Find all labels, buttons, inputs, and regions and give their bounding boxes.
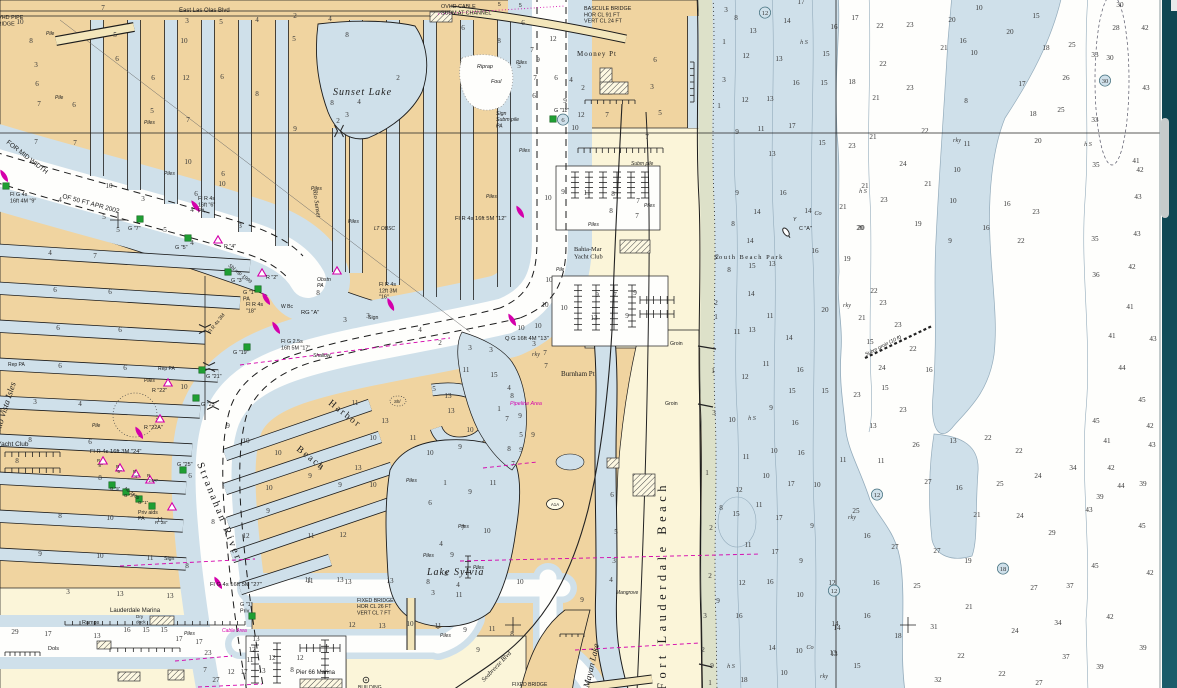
place-label: Shallow [313,353,331,359]
sounding: 9 [293,125,297,133]
daymark-green-square-icon [3,183,9,189]
sounding: 37 [1062,653,1070,661]
sounding: 23 [906,84,914,92]
sounding: 7 [101,4,105,12]
sounding: 9 [595,291,599,299]
place-label: Riprap [477,64,493,70]
sounding: 17 [787,480,795,488]
building-hatched [150,616,174,625]
sounding: 13 [829,649,837,657]
place-label: Mooney Pt [577,50,617,58]
place-label: Groin [665,401,678,407]
place-label: LT OBSC [374,226,395,232]
sounding: 21 [965,603,973,611]
nav-aid-label: R "22A" [144,425,163,431]
sounding: 45 [1138,522,1146,530]
sounding: 8 [15,457,19,465]
place-label: Cable Area [222,628,247,634]
sounding: 11 [147,554,154,562]
sounding: 11 [410,434,417,442]
sounding: 10 [265,484,273,492]
nav-aid-label: G "3" [231,278,244,284]
place-label: Piles [516,60,527,66]
place-label: Bahia-MarYacht Club [574,246,603,261]
sounding: 3 [34,61,38,69]
sounding: 7 [37,100,41,108]
sounding: 11 [745,541,752,549]
sounding: 6 [532,92,536,100]
sounding: 22 [957,652,965,660]
sounding: 12 [348,621,356,629]
sounding: 9 [716,597,720,605]
sounding: 22 [909,345,917,353]
place-label: Piles [516,60,527,66]
sounding: 11 [767,312,774,320]
bottom-type-label: rky [843,302,851,309]
sounding: 4 [48,249,52,257]
sounding: 15 [160,626,168,634]
sounding: 10 [560,304,568,312]
sounding: 29 [1048,529,1056,537]
place-label: Pile [55,95,64,101]
sounding: 23 [1032,208,1040,216]
place-label: FIXED BRIDGEHOR CL 26 FTVERT CL 7 FT [357,598,394,616]
place-label: FIXED BRIDGE [512,682,548,688]
nav-aid-label: G "25" [177,462,193,468]
sounding: 2 [708,572,712,580]
sounding: 13 [252,635,260,643]
sounding: 13 [775,55,783,63]
sounding: 9 [476,646,480,654]
sounding: 41 [1108,332,1116,340]
sounding: 8 [211,518,215,526]
sounding: 39 [1139,644,1147,652]
sounding: 10 [516,578,524,586]
sounding: 5 [219,18,223,26]
sounding: 11 [964,140,971,148]
building-circle-dot [365,679,367,681]
sounding: 9 [710,662,714,670]
sounding: 10 [975,4,983,12]
sounding: 21 [924,180,932,188]
sounding: 25 [1057,106,1065,114]
place-label: Bahia-MarYacht Club [574,246,603,261]
sounding: 11 [490,479,497,487]
sounding: 15 [853,662,861,670]
sounding: 10 [571,124,579,132]
sounding: 25 [913,582,921,590]
sounding: 45 [1091,562,1099,570]
sounding: 8 [290,666,294,674]
place-label: Cable Area [222,628,247,634]
nav-aid-label: G "5" [175,245,188,251]
route-shield-label: A1A [551,502,559,507]
sounding: 12 [741,96,749,104]
building-hatched [97,641,111,649]
sounding: 2 [709,524,713,532]
sounding: 16 [811,247,819,255]
place-label: Burnham Pt [561,370,595,378]
sounding: 7 [511,460,515,468]
place-label: 5 [519,3,522,9]
sounding: 9 [561,188,565,196]
sounding: 2 [581,84,585,92]
nav-aid-label: G "1" [138,500,149,505]
nav-aid-label: G "5" [110,486,121,491]
sounding: 4 [255,16,259,24]
sounding: 10 [406,620,414,628]
sounding: 11 [307,577,314,585]
sounding: 10 [949,197,957,205]
nav-aid-label: G "21" [206,374,222,380]
sounding: 43 [1134,193,1142,201]
sounding: 3 [343,316,347,324]
sounding: 5 [519,431,523,439]
sounding: 27 [924,478,932,486]
place-label: Piles [440,633,451,639]
sounding: 22 [921,127,929,135]
sounding: 9 [799,557,803,565]
sounding: 21 [858,314,866,322]
sounding: 13 [378,622,386,630]
sounding: 16 [982,224,990,232]
sounding: 6 [56,324,60,332]
sounding: 20 [821,306,829,314]
chart-pan-area[interactable]: 3813141716121315131213161518117911131523… [0,0,1177,688]
bottom-type-label: rky [532,351,540,358]
sounding: 24 [1034,472,1042,480]
sounding: 10 [795,647,803,655]
sounding: 3 [489,346,493,354]
sounding: 24 [878,364,886,372]
place-label: FIXED BRIDGE [512,682,548,688]
sounding: 8 [185,562,189,570]
nav-aid-label: G "3" [124,493,135,498]
sounding: 2 [438,339,442,347]
sounding: 20 [857,224,865,232]
sounding: 16 [779,189,787,197]
place-label: Sign [368,315,378,321]
place-label: LT OBSC [374,226,395,232]
sounding: 6 [58,362,62,370]
sounding: 10 [184,158,192,166]
sounding: 4 [507,384,511,392]
place-label: 5 [519,3,522,9]
sounding: 8 [255,90,259,98]
sounding: 9 [625,312,629,320]
sounding: 17 [775,514,783,522]
sounding: 17 [1018,80,1026,88]
place-label: Ramps [82,620,100,626]
sounding: 37 [1066,582,1074,590]
sounding: 9 [38,550,42,558]
sounding: 7 [530,46,534,54]
chart-paper: 3813141716121315131213161518117911131523… [0,0,1162,688]
sounding: 13 [386,577,394,585]
sounding: 23 [853,391,861,399]
sounding: 7 [544,362,548,370]
place-label: Piles [423,553,434,559]
sounding: 6 [610,491,614,499]
nav-aid-label: Q G 16ft 4M "13" [505,336,549,342]
sounding: 1 [443,479,447,487]
sounding: 10 [545,276,553,284]
place-label: Piles [486,194,497,200]
nav-aid-label: R "22" [152,388,167,394]
sounding: 10 [780,669,788,677]
sounding: 8 [316,289,320,297]
sounding: 8 [28,436,32,444]
sounding: 13 [354,464,362,472]
sounding: 6 [88,438,92,446]
sounding: 13 [590,314,598,322]
sounding: 21 [973,511,981,519]
sounding: 11 [756,501,763,509]
sounding: 24 [1016,512,1024,520]
sounding: 15 [820,79,828,87]
sounding: 15 [748,262,756,270]
sounding: 4 [418,326,422,334]
sounding: 14 [804,207,812,215]
sounding: 4 [456,581,460,589]
sounding: 13 [749,27,757,35]
sounding: 6 [220,73,224,81]
sounding: 15 [818,139,826,147]
place-label: Pile [556,267,565,273]
building-hatched [607,458,619,468]
bottom-type-label: Co [814,210,821,217]
sounding: 3 [185,17,189,25]
sounding: 14 [783,17,791,25]
sounding: 33 [1091,116,1099,124]
sounding: 23 [204,649,212,657]
sounding: 22 [984,434,992,442]
nav-aid-label: Fl G 4s 16ft 5M "27" [210,582,262,588]
place-label: Rep PA [8,362,26,368]
sounding: 23 [906,21,914,29]
sounding: 10 [369,434,377,442]
sounding: 21 [940,44,948,52]
sounding: 2 [336,117,340,125]
sounding: 36 [1092,271,1100,279]
place-label: Pile [556,267,565,273]
sounding: 5 [292,35,296,43]
nav-aid-label: Fl R 4s 16ft 3M "24" [90,449,141,455]
daymark-green-square-icon [255,286,261,292]
nav-aid-label: G "11" [554,108,569,114]
sounding: 10 [426,449,434,457]
sounding: 10 [728,416,736,424]
sounding: 7 [635,212,639,220]
sounding: 11 [734,328,741,336]
bottom-type-label: rky [820,673,828,680]
sounding: 7 [73,139,77,147]
sounding: 41 [1103,437,1111,445]
sounding: 7 [645,133,649,141]
bottom-type-label: h S [748,415,756,422]
sounding: 1 [497,405,501,413]
place-label: Subm pile [631,161,653,167]
sounding: 23 [848,142,856,150]
sounding: 8 [611,190,615,198]
sounding: 8 [719,504,723,512]
sounding: 14 [768,644,776,652]
nav-aid-label: G "7" [128,226,141,232]
circled-sounding-value: 12 [831,588,838,595]
sounding: 24 [1011,627,1019,635]
daymark-green-square-icon [149,503,155,509]
sounding: 17 [788,122,796,130]
sounding: 39 [1096,663,1104,671]
sounding: 15 [881,384,889,392]
sounding: 2 [701,646,705,654]
sounding: 16 [872,579,880,587]
bottom-type-label: Co [806,644,813,651]
sounding: 21 [869,133,877,141]
place-label: Shl [394,399,401,404]
sounding: 13 [869,422,877,430]
sounding: 42 [1141,24,1149,32]
sounding: 16 [796,366,804,374]
vertical-scrollbar-thumb[interactable] [1161,118,1169,218]
place-label: FIXED BRIDGEHOR CL 26 FTVERT CL 7 FT [357,598,394,616]
sounding: 15 [490,371,498,379]
sounding: 9 [948,237,952,245]
sounding: 16 [863,532,871,540]
sounding: 1 [705,469,709,477]
sounding: 16 [863,612,871,620]
sounding: 9 [518,412,522,420]
sounding: 23 [894,321,902,329]
sounding: 16 [766,578,774,586]
sounding: 26 [912,441,920,449]
sounding: 10 [762,472,770,480]
sounding: 6 [461,24,465,32]
sounding: 16 [792,79,800,87]
place-label: Sign [368,315,378,321]
nav-aid-label: C "A" [799,226,812,232]
sounding: 16 [959,37,967,45]
sounding: 16 [925,366,933,374]
sounding: 27 [212,676,220,684]
sounding: 15 [821,387,829,395]
sounding: 14 [747,290,755,298]
place-label: Groin [670,341,683,347]
building-hatched [118,672,140,681]
nav-aid-label: G "5" [110,486,121,491]
place-label: Pile [46,31,55,37]
sounding: 4 [357,98,361,106]
sounding: 3 [650,83,654,91]
sounding: 41 [1126,303,1134,311]
sounding: 10 [242,437,250,445]
place-label: Piles [406,478,417,484]
sounding: 10 [105,182,113,190]
sounding: 13 [116,590,124,598]
place-label: Piles [348,219,359,225]
sounding: 10 [274,449,282,457]
sounding: 8 [29,37,33,45]
nav-aid-label: Fl R 4s 16ft 5M "12" [455,216,506,222]
sounding: 9 [531,431,535,439]
bottom-type-label: h S [727,663,735,670]
sounding: 45 [1138,396,1146,404]
nav-aid-label: W Bc [281,304,293,310]
sounding: 3 [468,344,472,352]
place-label: Burnham Pt [561,370,595,378]
sounding: 6 [554,74,558,82]
sounding: 4 [78,400,82,408]
sounding: 8 [510,392,514,400]
sounding: 6 [115,55,119,63]
sounding: 15 [822,50,830,58]
sounding: 10 [770,447,778,455]
route-shield-label: A1A [551,502,559,507]
sounding: 12 [741,373,749,381]
scrollbar-corner [1171,0,1177,11]
sounding: 10 [218,180,226,188]
sounding: 8 [345,31,349,39]
sounding: 11 [308,532,315,540]
sounding: 39 [1096,493,1104,501]
place-label: Shl [394,399,401,404]
place-label: Mangrove [616,590,638,596]
sounding: 11 [743,453,750,461]
daymark-green-square-icon [185,235,191,241]
place-label: Pile [46,31,55,37]
sounding: 42 [1107,464,1115,472]
sounding: 12 [242,532,250,540]
daymark-green-square-icon [137,216,143,222]
nav-aid-label: G "7" [128,226,141,232]
sounding: 11 [352,399,359,407]
sounding: 12 [577,111,585,119]
circled-sounding-value: 18 [1000,566,1007,573]
place-label: Pier 66 Marina [296,670,336,676]
nav-aid-label: RG "A" [301,310,319,316]
sounding: 13 [748,326,756,334]
sounding: 30 [1106,54,1114,62]
sounding: 5 [432,385,436,393]
sounding: 19 [964,557,972,565]
bottom-type-label: h S [859,188,867,195]
nav-aid-label: G "11" [554,108,569,114]
place-label: Dols [48,646,59,652]
sounding: 3 [712,409,716,417]
sounding: 13 [258,667,266,675]
building-hatched [633,474,655,496]
sounding: 39 [1139,480,1147,488]
sounding: 6 [35,80,39,88]
sounding: 13 [444,392,452,400]
place-label: Piles [644,203,655,209]
nav-aid-label: G "25" [177,462,193,468]
sounding: 7 [203,666,207,674]
place-label: Pile [92,423,101,429]
sounding: 27 [933,547,941,555]
sounding: 42 [1128,263,1136,271]
sounding: 42 [1106,613,1114,621]
sounding: 5 [150,107,154,115]
sounding: 13 [768,150,776,158]
sounding: 16 [955,484,963,492]
place-label: Pipeline Area [510,401,542,407]
sounding: 6 [72,101,76,109]
sounding: 4 [569,76,573,84]
sounding: 7 [543,349,547,357]
place-label: Rep PA [158,366,176,372]
daymark-green-square-icon [193,395,199,401]
